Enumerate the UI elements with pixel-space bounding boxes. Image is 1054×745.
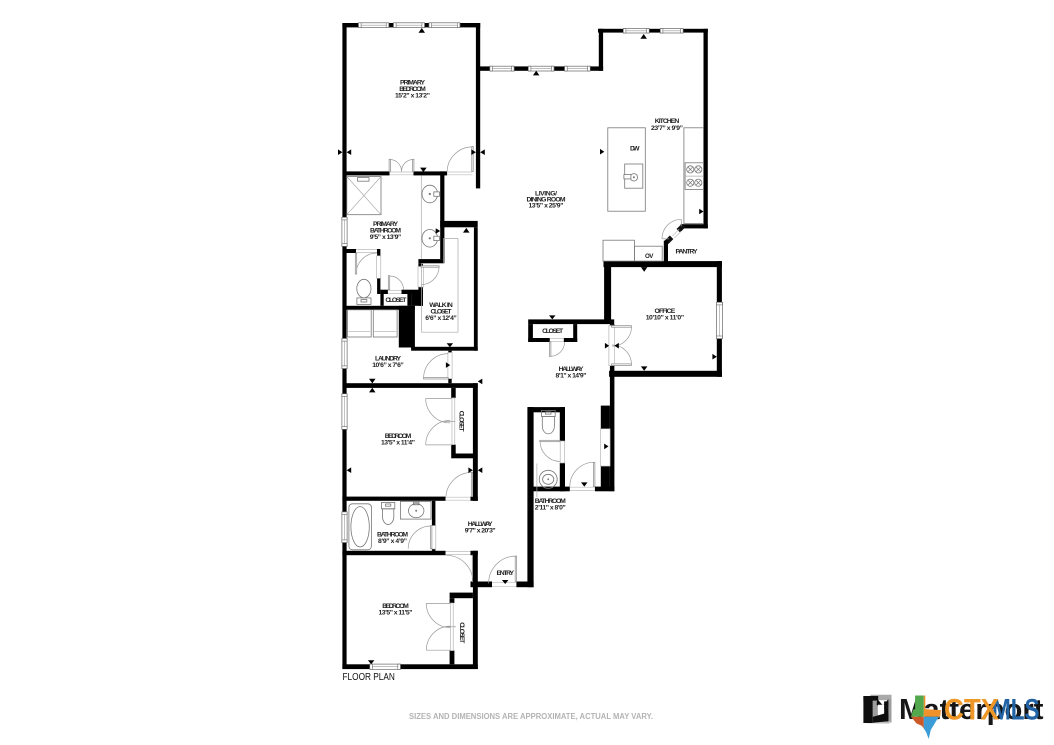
- svg-text:BEDROOM13’5” x 11’4”: BEDROOM13’5” x 11’4”: [381, 433, 415, 447]
- svg-text:PANTRY: PANTRY: [676, 249, 698, 256]
- svg-text:BEDROOM13’5” x 11’5”: BEDROOM13’5” x 11’5”: [379, 603, 413, 617]
- svg-text:PRIMARYBATHROOM9’5” x 13’9”: PRIMARYBATHROOM9’5” x 13’9”: [370, 221, 402, 241]
- svg-text:LAUNDRY10’6” x 7’6”: LAUNDRY10’6” x 7’6”: [372, 355, 404, 369]
- svg-text:ENTRY: ENTRY: [497, 570, 515, 577]
- svg-text:MLS: MLS: [992, 694, 1040, 727]
- svg-text:HALLWAY9’7” x 20’3”: HALLWAY9’7” x 20’3”: [465, 521, 496, 535]
- svg-text:CLOSET: CLOSET: [385, 297, 407, 304]
- svg-text:CLOSET: CLOSET: [458, 622, 465, 644]
- svg-text:OV: OV: [645, 253, 654, 260]
- svg-text:KITCHEN23’7” x 9’9”: KITCHEN23’7” x 9’9”: [651, 118, 683, 132]
- svg-text:BATHROOM8’9” x 4’9”: BATHROOM8’9” x 4’9”: [377, 532, 408, 546]
- svg-text:CTX: CTX: [944, 694, 999, 727]
- svg-text:HALLWAY8’1” x 14’9”: HALLWAY8’1” x 14’9”: [556, 366, 587, 380]
- svg-text:PRIMARYBEDROOM15’2” x 13’2”: PRIMARYBEDROOM15’2” x 13’2”: [395, 80, 430, 100]
- svg-text:FLOOR PLAN: FLOOR PLAN: [343, 672, 395, 683]
- svg-text:DW: DW: [630, 146, 640, 153]
- svg-text:SIZES AND DIMENSIONS ARE APPRO: SIZES AND DIMENSIONS ARE APPROXIMATE, AC…: [409, 712, 653, 721]
- svg-text:CLOSET: CLOSET: [542, 328, 564, 335]
- svg-text:CLOSET: CLOSET: [457, 411, 464, 433]
- svg-text:BATHROOM2’11” x 8’0”: BATHROOM2’11” x 8’0”: [535, 498, 566, 512]
